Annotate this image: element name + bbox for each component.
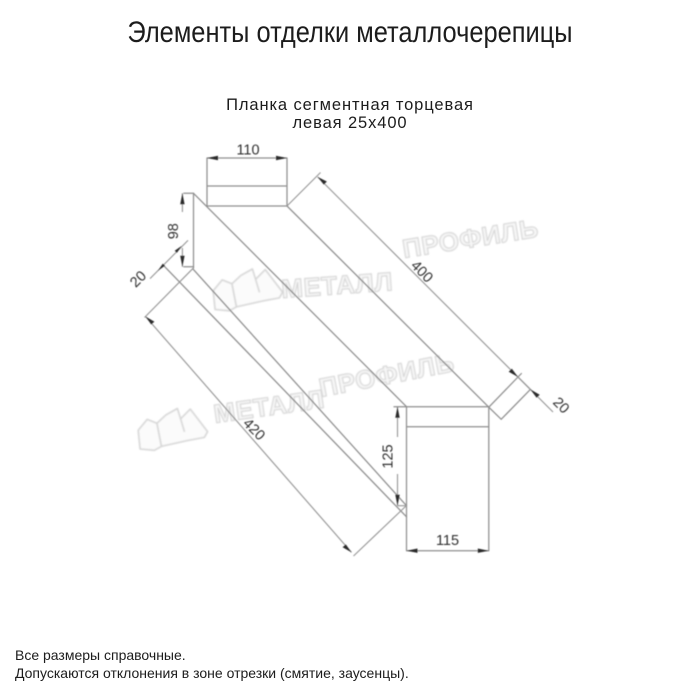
svg-text:МЕТАЛЛ: МЕТАЛЛ bbox=[280, 266, 394, 304]
svg-text:20: 20 bbox=[549, 394, 572, 417]
svg-text:МЕТАЛЛ: МЕТАЛЛ bbox=[212, 384, 327, 429]
svg-text:110: 110 bbox=[236, 142, 259, 158]
svg-text:20: 20 bbox=[127, 268, 150, 291]
svg-text:125: 125 bbox=[381, 444, 397, 468]
svg-text:ПРОФИЛЬ: ПРОФИЛЬ bbox=[316, 347, 456, 403]
svg-text:98: 98 bbox=[166, 223, 182, 239]
svg-text:ПРОФИЛЬ: ПРОФИЛЬ bbox=[400, 213, 540, 264]
svg-text:115: 115 bbox=[436, 533, 459, 549]
